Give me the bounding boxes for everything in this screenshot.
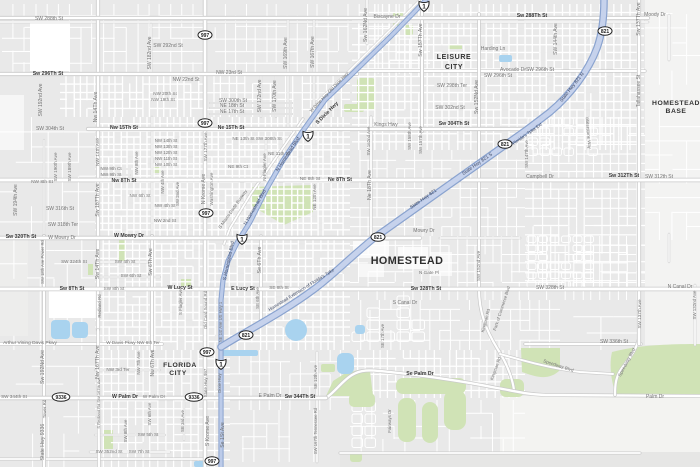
svg-text:E Palm Dr: E Palm Dr (259, 393, 282, 399)
svg-text:Ne 8Th St: Ne 8Th St (328, 177, 352, 183)
svg-text:W Mowry Dr: W Mowry Dr (114, 233, 144, 239)
svg-text:NW 8th Ave: NW 8th Ave (134, 151, 139, 175)
svg-text:Nw 15Th St: Nw 15Th St (110, 125, 138, 131)
svg-text:Ne 18Th Ave: Ne 18Th Ave (367, 170, 373, 200)
svg-text:Tallahassee St: Tallahassee St (636, 74, 642, 107)
svg-text:Biscayne Dr: Biscayne Dr (374, 14, 401, 20)
svg-text:CITY: CITY (169, 370, 186, 377)
svg-text:SW 144th Ave: SW 144th Ave (553, 23, 559, 55)
svg-text:E Lucy St: E Lucy St (231, 286, 255, 292)
svg-text:Palm Dr: Palm Dr (646, 394, 664, 400)
svg-text:Se 6Th Ave: Se 6Th Ave (257, 247, 263, 274)
svg-text:Harding Ln: Harding Ln (481, 46, 506, 52)
svg-text:Sw 162Nd Ave: Sw 162Nd Ave (363, 8, 369, 42)
svg-text:997: 997 (201, 33, 210, 39)
svg-text:SW 328th St: SW 328th St (536, 285, 565, 291)
svg-text:Sw 187Th Ave: Sw 187Th Ave (95, 183, 101, 216)
svg-text:Redland Rd: Redland Rd (97, 294, 102, 318)
svg-text:Ne 15Th St: Ne 15Th St (218, 125, 245, 131)
svg-text:SW 2nd Ave: SW 2nd Ave (175, 181, 180, 206)
svg-text:Sw 152Nd Ave: Sw 152Nd Ave (474, 80, 480, 114)
svg-text:1: 1 (240, 236, 244, 243)
svg-text:Sw 304Th St: Sw 304Th St (439, 121, 470, 127)
svg-text:SW 296th St: SW 296th St (484, 73, 513, 79)
svg-text:Fairways Dr: Fairways Dr (387, 409, 392, 433)
svg-text:997: 997 (203, 350, 212, 356)
svg-text:SW 132nd Ave: SW 132nd Ave (692, 290, 697, 320)
svg-text:Sw 288Th St: Sw 288Th St (517, 13, 548, 19)
svg-text:SW 6th Ave: SW 6th Ave (147, 402, 152, 425)
svg-text:SW 302nd St: SW 302nd St (435, 105, 465, 111)
svg-text:SW 288th St: SW 288th St (35, 16, 64, 22)
svg-text:BASE: BASE (666, 108, 687, 115)
svg-text:SW 169th Ave: SW 169th Ave (283, 37, 289, 69)
svg-text:N Krome Ave: N Krome Ave (201, 174, 207, 205)
svg-text:N Gate Pl: N Gate Pl (419, 270, 439, 275)
svg-text:NW 4th St: NW 4th St (155, 203, 177, 208)
svg-text:NW 10th St: NW 10th St (155, 162, 178, 167)
svg-text:NW 6th St: NW 6th St (130, 193, 152, 198)
svg-text:SW 5th St: SW 5th St (138, 432, 159, 437)
svg-text:SW 157th Ave: SW 157th Ave (418, 126, 423, 154)
svg-text:997: 997 (201, 121, 210, 127)
svg-text:Sw 328Th St: Sw 328Th St (411, 286, 442, 292)
svg-text:NW 14th Ave: NW 14th Ave (95, 138, 101, 166)
svg-text:W Palm Dr: W Palm Dr (112, 394, 138, 400)
svg-text:NW 2nd St: NW 2nd St (154, 218, 177, 223)
svg-text:Sw 344Th St: Sw 344Th St (285, 394, 316, 400)
svg-text:Washington Ave: Washington Ave (209, 172, 214, 205)
svg-text:HOMESTEAD: HOMESTEAD (652, 100, 700, 107)
svg-text:NW 9th Ct: NW 9th Ct (100, 166, 122, 171)
svg-text:State Hwy 9336: State Hwy 9336 (40, 424, 46, 461)
svg-text:NW 19th St: NW 19th St (151, 97, 175, 102)
svg-text:Tower Rd: Tower Rd (42, 399, 47, 418)
svg-text:Dixie Hwy: Dixie Hwy (217, 372, 222, 392)
svg-text:Sw 157Th Ave: Sw 157Th Ave (418, 23, 424, 56)
svg-text:SW 324th St: SW 324th St (61, 259, 88, 264)
svg-text:NW 14th St: NW 14th St (155, 138, 178, 143)
svg-text:SW 296th St: SW 296th St (526, 67, 555, 73)
svg-text:SW 352nd St: SW 352nd St (95, 449, 123, 454)
svg-text:NW 4th Ave: NW 4th Ave (160, 170, 165, 194)
svg-text:NW 8th St: NW 8th St (31, 179, 54, 185)
svg-text:SW 147th Ave: SW 147th Ave (524, 140, 529, 168)
svg-text:NE 1st Ave US Hwy 1: NE 1st Ave US Hwy 1 (218, 301, 223, 342)
svg-text:NW 12th St: NW 12th St (155, 150, 178, 155)
svg-text:NE 9th Ct: NE 9th Ct (228, 164, 249, 169)
svg-text:NW 13th St: NW 13th St (155, 144, 178, 149)
svg-text:Se 1St Ave: Se 1St Ave (220, 422, 226, 448)
svg-text:SW 344th St: SW 344th St (1, 394, 28, 399)
svg-text:NW 3rd Ter: NW 3rd Ter (106, 367, 130, 372)
svg-text:SW 18th Ave Power Rd: SW 18th Ave Power Rd (40, 239, 45, 283)
svg-text:SW 316th St: SW 316th St (46, 206, 75, 212)
svg-text:Campbell Dr: Campbell Dr (526, 174, 554, 180)
svg-text:CITY: CITY (445, 64, 463, 71)
svg-text:SE 17th Ave: SE 17th Ave (380, 323, 385, 348)
svg-text:NW 22nd St: NW 22nd St (173, 77, 201, 83)
svg-text:SW 336th St: SW 336th St (600, 339, 629, 345)
svg-text:1: 1 (219, 361, 223, 368)
svg-text:Sw 320Th St: Sw 320Th St (6, 234, 37, 240)
svg-text:W Davis Pkwy NW 6th Ter: W Davis Pkwy NW 6th Ter (106, 340, 160, 345)
svg-text:SW 8th St: SW 8th St (104, 286, 125, 291)
svg-text:SW 177th Ave: SW 177th Ave (203, 132, 208, 161)
svg-text:SW 162nd Ave: SW 162nd Ave (366, 126, 371, 156)
svg-text:821: 821 (601, 29, 610, 35)
svg-text:SW 292nd St: SW 292nd St (153, 43, 183, 49)
svg-text:N Canal Dr: N Canal Dr (668, 284, 693, 290)
svg-text:Nw 8Th St: Nw 8Th St (111, 178, 136, 184)
svg-text:NW 7th Ave: NW 7th Ave (136, 351, 141, 375)
svg-text:Arthur Vining Davis Pkwy: Arthur Vining Davis Pkwy (3, 340, 57, 346)
svg-text:LEISURE: LEISURE (437, 54, 472, 61)
svg-text:State Hwy 997: State Hwy 997 (203, 368, 208, 397)
svg-text:NE 17th St: NE 17th St (220, 109, 245, 115)
svg-text:Sw 312Th St: Sw 312Th St (609, 173, 640, 179)
svg-text:821: 821 (501, 142, 510, 148)
svg-text:SW 318th Ter: SW 318th Ter (48, 222, 79, 228)
svg-text:SW 194th Ave: SW 194th Ave (13, 184, 19, 216)
svg-text:997: 997 (202, 211, 211, 217)
svg-text:1: 1 (422, 3, 426, 10)
svg-text:SW 7th St: SW 7th St (129, 449, 150, 454)
svg-text:Sw 14Th Ave: Sw 14Th Ave (95, 249, 101, 280)
svg-text:FLORIDA: FLORIDA (163, 362, 197, 369)
svg-text:SW 189th Ave: SW 189th Ave (67, 152, 72, 181)
svg-text:W Palm Dr: W Palm Dr (143, 394, 166, 399)
svg-text:SW 182nd Ave: SW 182nd Ave (147, 36, 153, 69)
svg-text:SW 152nd Ave: SW 152nd Ave (476, 250, 481, 281)
svg-text:Kings Hwy: Kings Hwy (374, 122, 398, 128)
svg-text:SW 167th Ave: SW 167th Ave (310, 36, 316, 68)
svg-text:Sw 137Th Ave: Sw 137Th Ave (636, 2, 642, 35)
svg-text:SW 172nd Ave: SW 172nd Ave (257, 79, 263, 112)
svg-text:SW 137th Ave: SW 137th Ave (637, 299, 642, 328)
svg-text:Nw 6Th Ave: Nw 6Th Ave (150, 349, 156, 376)
svg-text:SW 190th Ave: SW 190th Ave (53, 152, 58, 181)
svg-text:SW 304th St: SW 304th St (36, 126, 65, 132)
svg-text:SW 192nd Ave: SW 192nd Ave (38, 83, 44, 116)
svg-text:S Canal Dr: S Canal Dr (393, 300, 418, 306)
svg-text:SE 3rd Ave: SE 3rd Ave (180, 410, 185, 432)
svg-text:W Mowry Dr: W Mowry Dr (48, 235, 76, 241)
svg-text:NW 20th St: NW 20th St (153, 91, 177, 96)
svg-text:9336: 9336 (55, 395, 66, 401)
svg-text:Sw 192Nd Ave: Sw 192Nd Ave (40, 350, 46, 384)
svg-text:821: 821 (242, 333, 251, 339)
svg-text:NW 11th St: NW 11th St (155, 156, 178, 161)
svg-text:Se Palm Dr: Se Palm Dr (406, 371, 433, 377)
svg-text:SW 298th Ter: SW 298th Ter (437, 83, 468, 89)
svg-text:Nw 167Th Ave: Nw 167Th Ave (95, 345, 101, 379)
svg-text:SW 4th St: SW 4th St (115, 259, 136, 264)
svg-text:Sw 6Th Ave: Sw 6Th Ave (148, 248, 154, 276)
svg-text:SW 167th Tennessee Rd: SW 167th Tennessee Rd (313, 407, 318, 454)
svg-text:NE 8th St: NE 8th St (300, 176, 321, 182)
svg-text:Sw 296Th St: Sw 296Th St (33, 71, 64, 77)
svg-text:821: 821 (374, 235, 383, 241)
svg-text:997: 997 (208, 459, 217, 465)
svg-text:Nw 14Th Ave: Nw 14Th Ave (93, 92, 99, 123)
svg-text:NE 12th Ave: NE 12th Ave (312, 184, 317, 210)
svg-text:SW 158th Ave: SW 158th Ave (407, 122, 412, 150)
svg-text:S Redland Rd SW 167th Ave: S Redland Rd SW 167th Ave (96, 377, 101, 429)
svg-text:N Flagler Ave: N Flagler Ave (262, 153, 267, 181)
svg-text:Old Card Sound Rd: Old Card Sound Rd (203, 290, 208, 329)
svg-text:Mowry Dr: Mowry Dr (413, 228, 435, 234)
svg-text:1: 1 (306, 133, 310, 140)
svg-text:SE 8th St: SE 8th St (269, 285, 289, 290)
svg-text:SE 6th Ave: SE 6th Ave (255, 287, 260, 309)
svg-text:SW 170th Ave: SW 170th Ave (272, 80, 278, 112)
svg-text:S Flagler Ave: S Flagler Ave (178, 288, 183, 315)
svg-text:SE 12th Ave: SE 12th Ave (313, 364, 318, 389)
svg-text:SW 8th Ave: SW 8th Ave (123, 419, 128, 442)
svg-text:NW 23rd St: NW 23rd St (216, 70, 242, 76)
svg-text:Sw 8Th St: Sw 8Th St (60, 286, 85, 292)
svg-text:SW 312th St: SW 312th St (645, 174, 674, 180)
svg-text:HOMESTEAD: HOMESTEAD (371, 255, 444, 267)
svg-text:9336: 9336 (188, 395, 199, 401)
svg-text:Moody Dr: Moody Dr (644, 12, 666, 18)
svg-text:SW 6th St: SW 6th St (121, 273, 142, 278)
svg-text:NW 9th St: NW 9th St (101, 172, 123, 177)
svg-text:S Krome Ave: S Krome Ave (205, 416, 211, 446)
svg-text:NE 13th St SW 308th St: NE 13th St SW 308th St (232, 136, 282, 141)
